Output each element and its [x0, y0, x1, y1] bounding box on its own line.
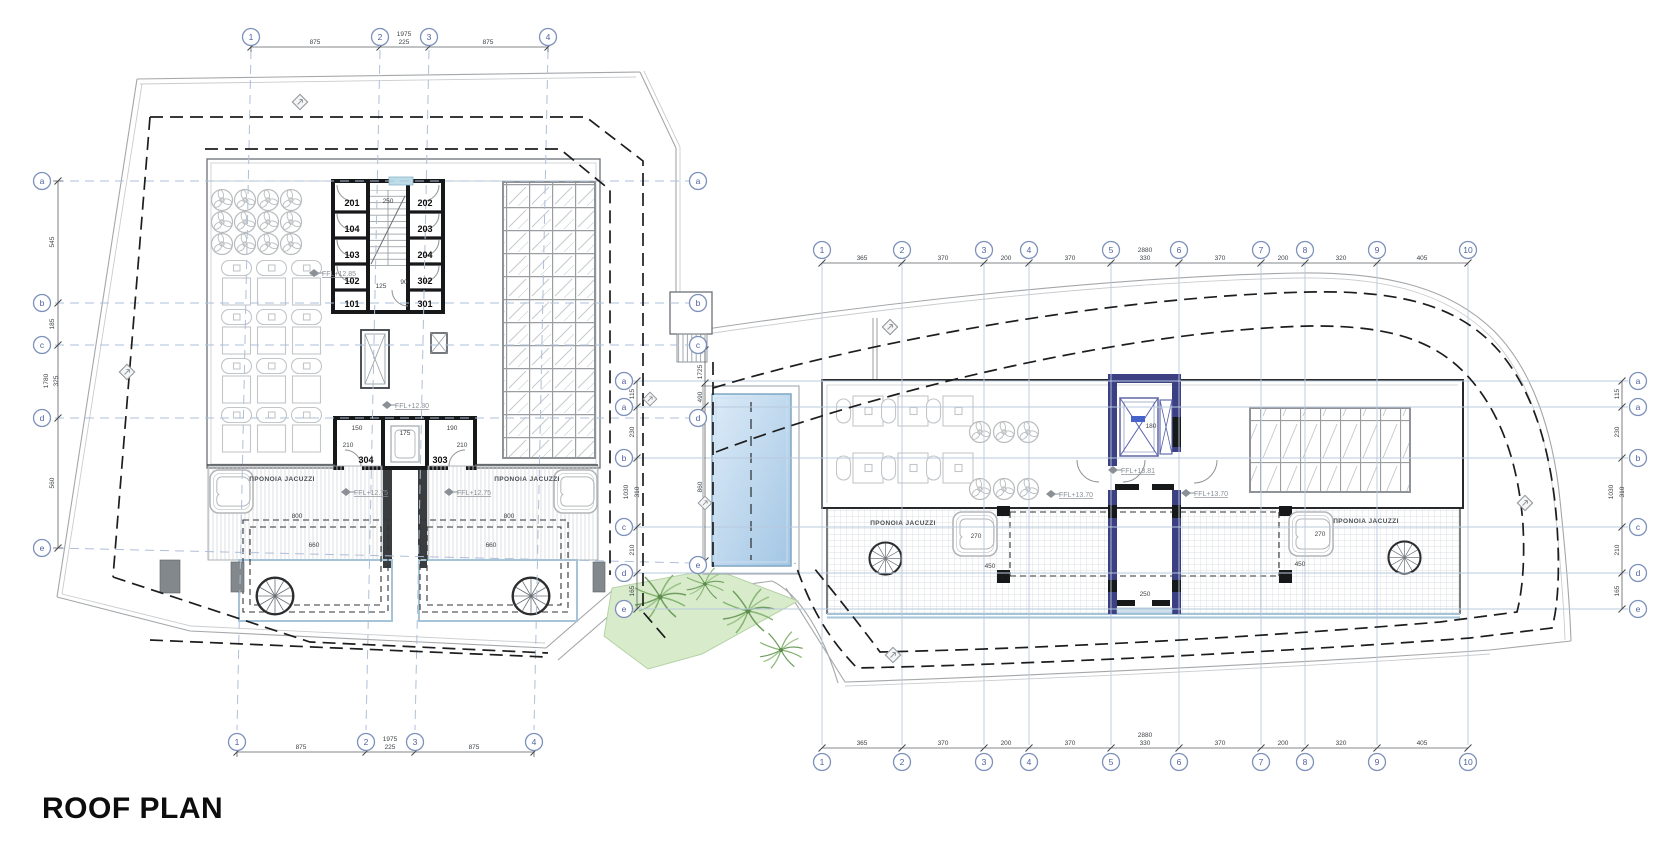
grid-bubble: 9 — [1375, 757, 1380, 767]
dim: 370 — [938, 740, 949, 747]
spiral-stair — [869, 542, 901, 574]
dim: 1975 — [383, 736, 398, 743]
jacuzzi-note: ΠΡΟΝΟΙΑ JACUZZI — [249, 476, 315, 483]
dim: 1975 — [397, 31, 412, 38]
dim: 370 — [1215, 740, 1226, 747]
room-number: 303 — [432, 455, 447, 465]
grid-bubble: 3 — [982, 245, 987, 255]
grid-bubble: 8 — [1303, 245, 1308, 255]
dim: 660 — [309, 542, 320, 549]
skylight-left — [503, 182, 595, 458]
grid-bubble: 7 — [1259, 757, 1264, 767]
dim: 370 — [1065, 740, 1076, 747]
grid-bubble: 1 — [249, 32, 254, 42]
ffl-label: FFL+13.70 — [1194, 491, 1228, 498]
room-number: 202 — [417, 198, 432, 208]
dim: 365 — [857, 255, 868, 262]
ffl-label: FFL+12.75 — [354, 490, 388, 497]
grid-bubble: 1 — [820, 245, 825, 255]
dim: 250 — [383, 198, 394, 205]
grid-bubble: 10 — [1463, 245, 1473, 255]
grid-bubble: 2 — [900, 245, 905, 255]
grid-bubble: 9 — [1375, 245, 1380, 255]
dim: 800 — [504, 513, 515, 520]
dim: 320 — [1336, 740, 1347, 747]
dim: 210 — [343, 442, 354, 449]
room-number: 104 — [344, 224, 359, 234]
grid-bubble: 6 — [1177, 757, 1182, 767]
grid-bubble: d — [622, 568, 627, 578]
ffl-label: FFL+13.81 — [1121, 468, 1155, 475]
grid-bubble: 5 — [1109, 757, 1114, 767]
room-number: 302 — [417, 276, 432, 286]
grid-bubble: d — [696, 413, 701, 423]
room-number: 203 — [417, 224, 432, 234]
dim: 660 — [486, 542, 497, 549]
dim: 165 — [629, 585, 636, 596]
spiral-stair — [1388, 541, 1420, 573]
grid-bubble: e — [1636, 604, 1641, 614]
dim: 115 — [1614, 388, 1621, 399]
grid-bubble: 2 — [900, 757, 905, 767]
grid-bubble: 1 — [235, 737, 240, 747]
grid-bubble: a — [40, 176, 45, 186]
grid-bubble: e — [622, 604, 627, 614]
dim: 210 — [457, 442, 468, 449]
dim: 405 — [1417, 255, 1428, 262]
dim: 2880 — [1138, 247, 1153, 254]
spiral-stair — [513, 578, 550, 615]
dim: 200 — [1278, 255, 1289, 262]
grid-bubble: 3 — [413, 737, 418, 747]
grid-bubble: 4 — [1027, 245, 1032, 255]
dim: 230 — [629, 426, 636, 437]
grid-bubble: b — [1636, 453, 1641, 463]
dim: 875 — [469, 744, 480, 751]
grid-bubble: 3 — [982, 757, 987, 767]
ffl-label: FFL+12.80 — [395, 403, 429, 410]
jacuzzi-note: ΠΡΟΝΟΙΑ JACUZZI — [1333, 518, 1399, 525]
dim: 1725 — [697, 364, 704, 379]
dim: 450 — [1295, 561, 1306, 568]
dim: 185 — [49, 318, 56, 329]
dim: 370 — [1215, 255, 1226, 262]
dim: 1030 — [623, 484, 630, 499]
dim: 560 — [49, 477, 56, 488]
grid-bubble: a — [1636, 402, 1641, 412]
ffl-label: FFL+12.85 — [322, 271, 356, 278]
dim: 450 — [985, 563, 996, 570]
right-building — [822, 374, 1463, 618]
dim: 2880 — [1138, 732, 1153, 739]
jacuzzi — [554, 470, 597, 513]
dim: 490 — [697, 391, 704, 402]
grid-bubble: 4 — [1027, 757, 1032, 767]
dim: 150 — [352, 425, 363, 432]
grid-bubble: 6 — [1177, 245, 1182, 255]
room-number: 301 — [417, 299, 432, 309]
room-number: 204 — [417, 250, 432, 260]
dim: 405 — [1417, 740, 1428, 747]
grid-bubble: 1 — [820, 757, 825, 767]
grid-bubble: d — [40, 413, 45, 423]
grid-bubble: d — [1636, 568, 1641, 578]
grid-bubble: b — [696, 298, 701, 308]
grid-bubble: a — [622, 376, 627, 386]
jacuzzi — [1289, 512, 1333, 556]
dim: 330 — [1140, 255, 1151, 262]
jacuzzi — [210, 470, 253, 513]
grid-bubble: 4 — [546, 32, 551, 42]
roof-plan-drawing: 875 1975 225 875 875 1975 225 875 545 18… — [0, 0, 1662, 844]
grid-bubble: 2 — [364, 737, 369, 747]
dim: 330 — [1140, 740, 1151, 747]
jacuzzi-note: ΠΡΟΝΟΙΑ JACUZZI — [870, 520, 936, 527]
dim: 115 — [629, 388, 636, 399]
room-number: 103 — [344, 250, 359, 260]
dim: 190 — [447, 425, 458, 432]
drawing-title: ROOF PLAN — [42, 792, 223, 825]
room-number: 101 — [344, 299, 359, 309]
skylight-right — [1250, 408, 1410, 492]
dim: 875 — [310, 39, 321, 46]
dim: 230 — [1614, 426, 1621, 437]
grid-bubble: 7 — [1259, 245, 1264, 255]
dim: 875 — [483, 39, 494, 46]
dim: 180 — [1146, 423, 1157, 430]
room-number: 201 — [344, 198, 359, 208]
dim: 125 — [376, 283, 387, 290]
dim: 210 — [1614, 544, 1621, 555]
dim: 200 — [1001, 255, 1012, 262]
dim: 175 — [400, 430, 411, 437]
ffl-label: FFL+13.70 — [1059, 492, 1093, 499]
pool-deck — [703, 386, 799, 574]
dim: 875 — [296, 744, 307, 751]
dim: 310 — [1619, 486, 1626, 497]
grid-bubble: 2 — [378, 32, 383, 42]
dim: 370 — [938, 255, 949, 262]
dim: 200 — [1278, 740, 1289, 747]
grid-bubble: a — [622, 402, 627, 412]
dim: 320 — [1336, 255, 1347, 262]
spiral-stair — [257, 578, 294, 615]
dim: 1030 — [1608, 484, 1615, 499]
dim: 210 — [629, 544, 636, 555]
dim: 1780 — [43, 373, 50, 388]
grid-bubble: b — [622, 453, 627, 463]
dim: 310 — [634, 486, 641, 497]
grid-bubble: 10 — [1463, 757, 1473, 767]
jacuzzi-note: ΠΡΟΝΟΙΑ JACUZZI — [494, 476, 560, 483]
room-number: 304 — [358, 455, 373, 465]
dim: 200 — [1001, 740, 1012, 747]
ffl-label: FFL+12.75 — [457, 490, 491, 497]
dim: 165 — [1614, 585, 1621, 596]
grid-bubble: 8 — [1303, 757, 1308, 767]
grid-bubble: 3 — [427, 32, 432, 42]
grid-bubble: e — [696, 560, 701, 570]
dim: 545 — [49, 236, 56, 247]
dim: 225 — [385, 744, 396, 751]
grid-bubble: b — [40, 298, 45, 308]
dim: 860 — [697, 481, 704, 492]
dim: 325 — [53, 375, 60, 386]
plan-canvas: 875 1975 225 875 875 1975 225 875 545 18… — [0, 0, 1662, 844]
dim: 250 — [1140, 591, 1151, 598]
grid-bubble: 5 — [1109, 245, 1114, 255]
dim: 225 — [399, 39, 410, 46]
grid-bubble: 4 — [532, 737, 537, 747]
dim: 365 — [857, 740, 868, 747]
grid-bubble: a — [1636, 376, 1641, 386]
grid-bubble: a — [696, 176, 701, 186]
dim: 800 — [292, 513, 303, 520]
dim: 270 — [971, 533, 982, 540]
grid-bubble: e — [40, 543, 45, 553]
dim: 90 — [400, 279, 408, 286]
dim: 270 — [1315, 531, 1326, 538]
dim: 370 — [1065, 255, 1076, 262]
